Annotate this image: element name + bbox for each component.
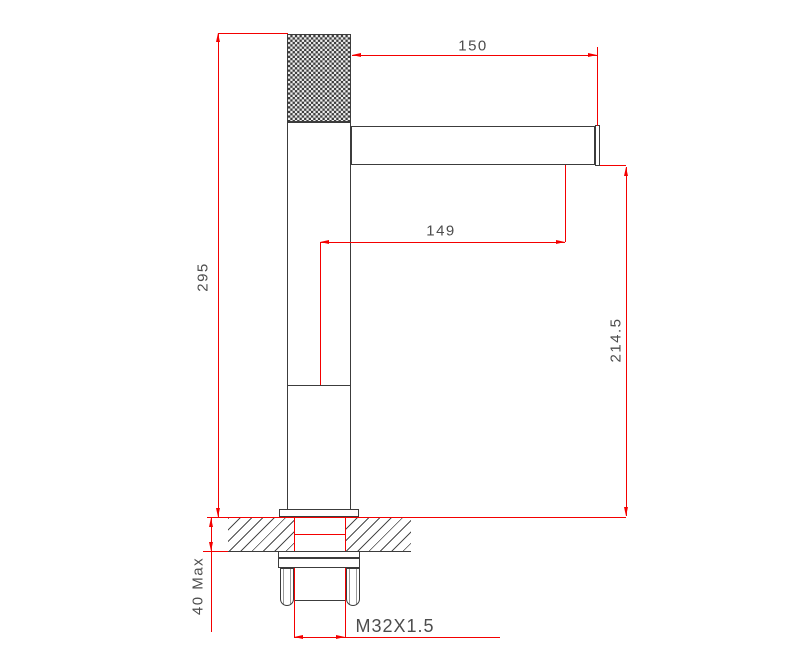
dim-line-2145 xyxy=(626,167,627,516)
countertop-hatch-right xyxy=(345,518,411,551)
dim-label-150: 150 xyxy=(458,39,488,54)
dim-label-2145: 214.5 xyxy=(609,317,624,362)
mounting-washer xyxy=(278,551,360,558)
mounting-stud-left xyxy=(280,568,294,606)
knurled-handle xyxy=(287,34,351,122)
mounting-surface-line xyxy=(207,517,626,518)
faucet-body-column xyxy=(287,122,351,510)
body-joint-line xyxy=(288,385,351,386)
shank-line-right-lower xyxy=(345,568,346,638)
dim-ext-149-centerline xyxy=(320,242,321,385)
spout-end-cap xyxy=(595,125,600,166)
countertop-hatch-left xyxy=(228,518,294,551)
spout-arm xyxy=(351,126,595,165)
dim-label-295: 295 xyxy=(196,262,211,292)
arrow-295-top xyxy=(216,33,220,42)
arrow-m32-right xyxy=(336,635,345,639)
arrow-2145-bottom xyxy=(624,507,628,516)
arrow-2145-top xyxy=(624,167,628,176)
dim-line-m32 xyxy=(294,637,500,638)
arrow-149-left xyxy=(320,240,329,244)
base-flange xyxy=(279,509,359,517)
faucet-dimension-drawing: 295 150 149 214.5 40 Max M32X1.5 xyxy=(0,0,800,667)
shank-bottom-line xyxy=(294,600,345,601)
arrow-40max-bottom xyxy=(209,542,213,551)
dim-ext-150-right xyxy=(597,47,598,126)
dim-label-40max: 40 Max xyxy=(191,557,206,615)
arrow-295-bottom xyxy=(216,508,220,517)
dim-ext-295-top xyxy=(218,33,288,34)
shank-thread-line xyxy=(294,534,346,535)
mounting-nut xyxy=(278,558,360,568)
dim-tick-40max xyxy=(203,551,228,552)
dim-label-m32: M32X1.5 xyxy=(355,617,434,635)
arrow-150-right xyxy=(588,53,597,57)
dim-line-40max xyxy=(211,517,212,632)
dim-line-150 xyxy=(352,55,597,56)
arrow-40max-top xyxy=(209,518,213,527)
arrow-m32-left xyxy=(294,635,303,639)
dim-ext-149-right xyxy=(565,165,566,242)
dim-label-149: 149 xyxy=(426,224,456,239)
dim-line-295 xyxy=(218,33,219,517)
mounting-stud-right xyxy=(346,568,360,606)
dim-line-149 xyxy=(320,242,565,243)
arrow-149-right xyxy=(556,240,565,244)
arrow-150-left xyxy=(352,53,361,57)
shank-line-left-lower xyxy=(294,568,295,638)
dim-ext-2145-top xyxy=(600,165,626,166)
